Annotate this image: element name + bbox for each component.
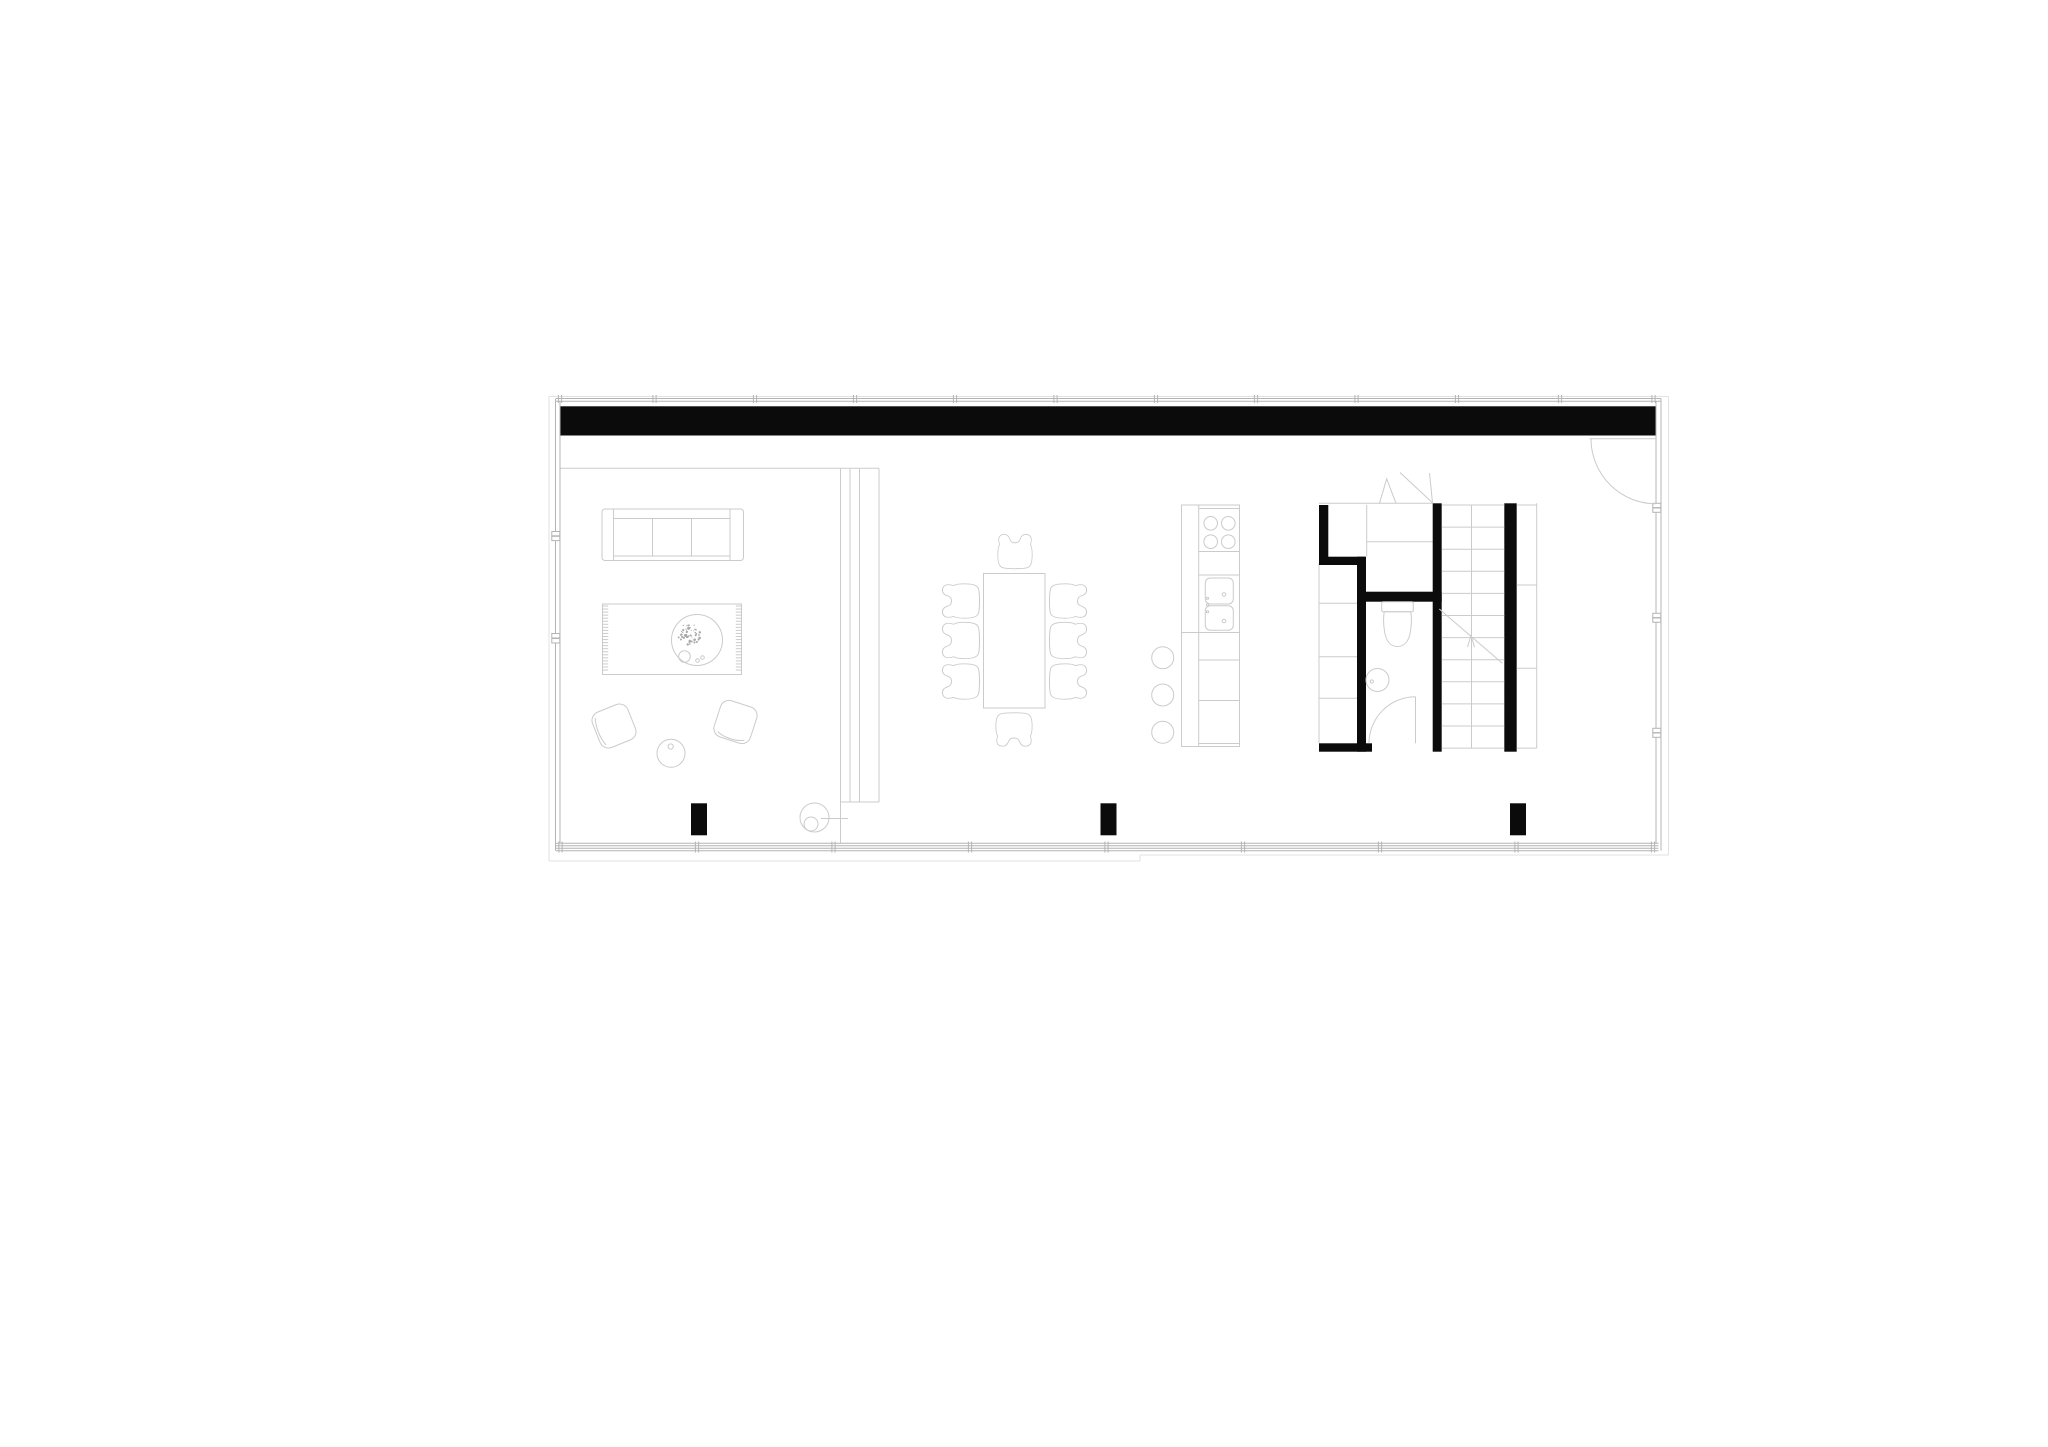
sofa (602, 509, 744, 561)
north-wall-black-band (560, 406, 1657, 435)
dining-table (984, 574, 1046, 709)
wc-door (1369, 697, 1416, 744)
bath-walls (1319, 503, 1517, 751)
staircase (1439, 503, 1536, 748)
lounge-chair-right (712, 698, 760, 746)
dining-chairs (942, 534, 1086, 746)
kitchen-island (1182, 505, 1240, 747)
south-glass-wall (556, 842, 1659, 853)
pivot-doors (1379, 473, 1432, 504)
bar-stools (1152, 647, 1174, 744)
side-table (657, 739, 685, 767)
right-wall (1653, 399, 1661, 851)
left-wall (552, 399, 560, 851)
outer-boundary (549, 397, 1669, 862)
toilet (1382, 602, 1414, 647)
partition-wall (821, 468, 879, 843)
floor-plan-drawing (0, 0, 2048, 1447)
washbasin (1366, 669, 1389, 692)
lounge-chair-left (589, 701, 638, 750)
floor-lamp (800, 803, 829, 832)
entry-door (1590, 439, 1657, 504)
floor-plan-page (0, 0, 2048, 1447)
coffee-table-with-plant (672, 615, 723, 666)
